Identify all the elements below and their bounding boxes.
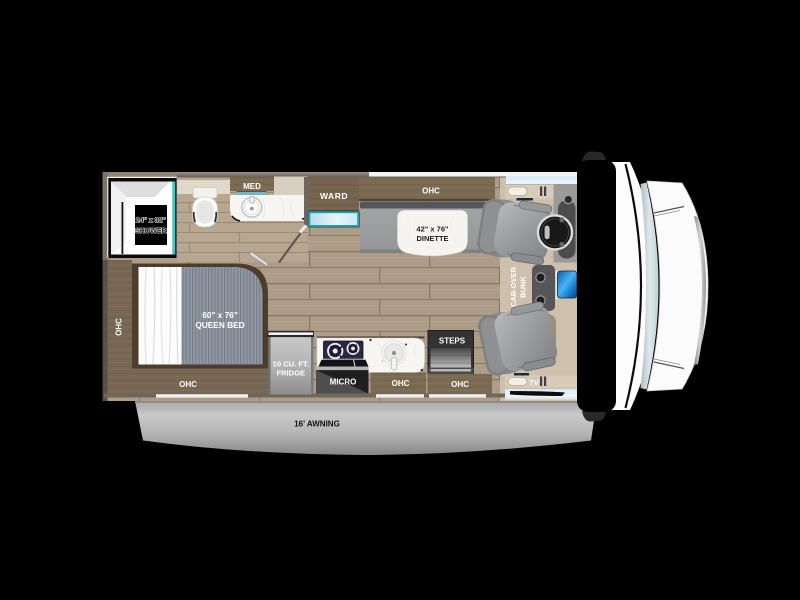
- svg-text:MICRO: MICRO: [330, 378, 357, 387]
- svg-text:60" x 76": 60" x 76": [202, 310, 238, 320]
- svg-text:BUNK: BUNK: [519, 276, 528, 298]
- svg-text:OHC: OHC: [179, 380, 197, 389]
- svg-text:TV: TV: [529, 378, 539, 387]
- svg-text:16' AWNING: 16' AWNING: [294, 420, 340, 429]
- svg-text:DINETTE: DINETTE: [416, 234, 448, 243]
- svg-text:OHC: OHC: [451, 380, 469, 389]
- svg-text:OHC: OHC: [422, 187, 440, 196]
- svg-text:QUEEN BED: QUEEN BED: [195, 320, 244, 330]
- svg-text:OHC: OHC: [392, 379, 410, 388]
- svg-text:OHC: OHC: [115, 318, 124, 336]
- svg-text:42" x 76": 42" x 76": [416, 224, 449, 233]
- svg-text:SHOWER: SHOWER: [135, 228, 167, 235]
- svg-text:24" x 32": 24" x 32": [136, 218, 166, 225]
- svg-text:MED: MED: [243, 182, 261, 191]
- svg-text:FRIDGE: FRIDGE: [276, 368, 305, 377]
- svg-text:WARD: WARD: [320, 191, 348, 201]
- svg-text:STEPS: STEPS: [439, 337, 466, 346]
- svg-text:CAB-OVER: CAB-OVER: [509, 266, 518, 307]
- svg-text:10 CU. FT.: 10 CU. FT.: [273, 360, 309, 369]
